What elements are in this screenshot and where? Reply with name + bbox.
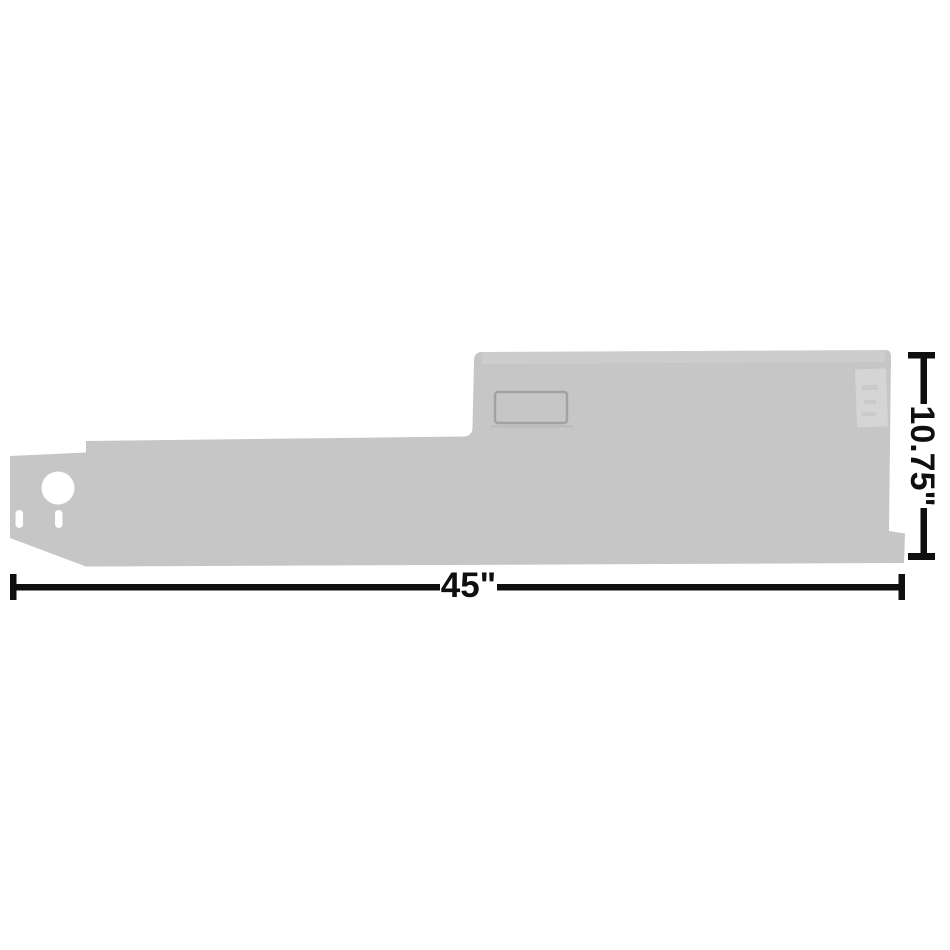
label-sticker <box>855 368 888 427</box>
part-dimension-diagram: 45" 10.75" <box>0 0 950 950</box>
label-sticker-mark <box>864 400 876 404</box>
height-dimension-tick-bottom <box>908 553 935 560</box>
height-dimension: 10.75" <box>903 352 941 560</box>
width-dimension-label: 45" <box>441 566 497 605</box>
label-sticker-mark <box>861 412 875 416</box>
product-image-canvas: 45" 10.75" <box>0 0 950 950</box>
width-dimension-line-left <box>10 584 440 591</box>
height-dimension-label: 10.75" <box>903 405 941 506</box>
panel-top-highlight <box>482 350 885 364</box>
width-dimension: 45" <box>10 566 905 605</box>
slot-hole-left <box>16 510 24 528</box>
width-dimension-line-right <box>497 584 899 591</box>
width-dimension-tick-right <box>899 574 906 600</box>
label-sticker-mark <box>862 385 878 391</box>
height-dimension-line-top <box>921 352 928 404</box>
panel-shape <box>10 350 905 567</box>
mounting-hole <box>42 472 75 505</box>
height-dimension-line-bottom <box>921 508 928 553</box>
slot-hole-right <box>55 510 63 528</box>
